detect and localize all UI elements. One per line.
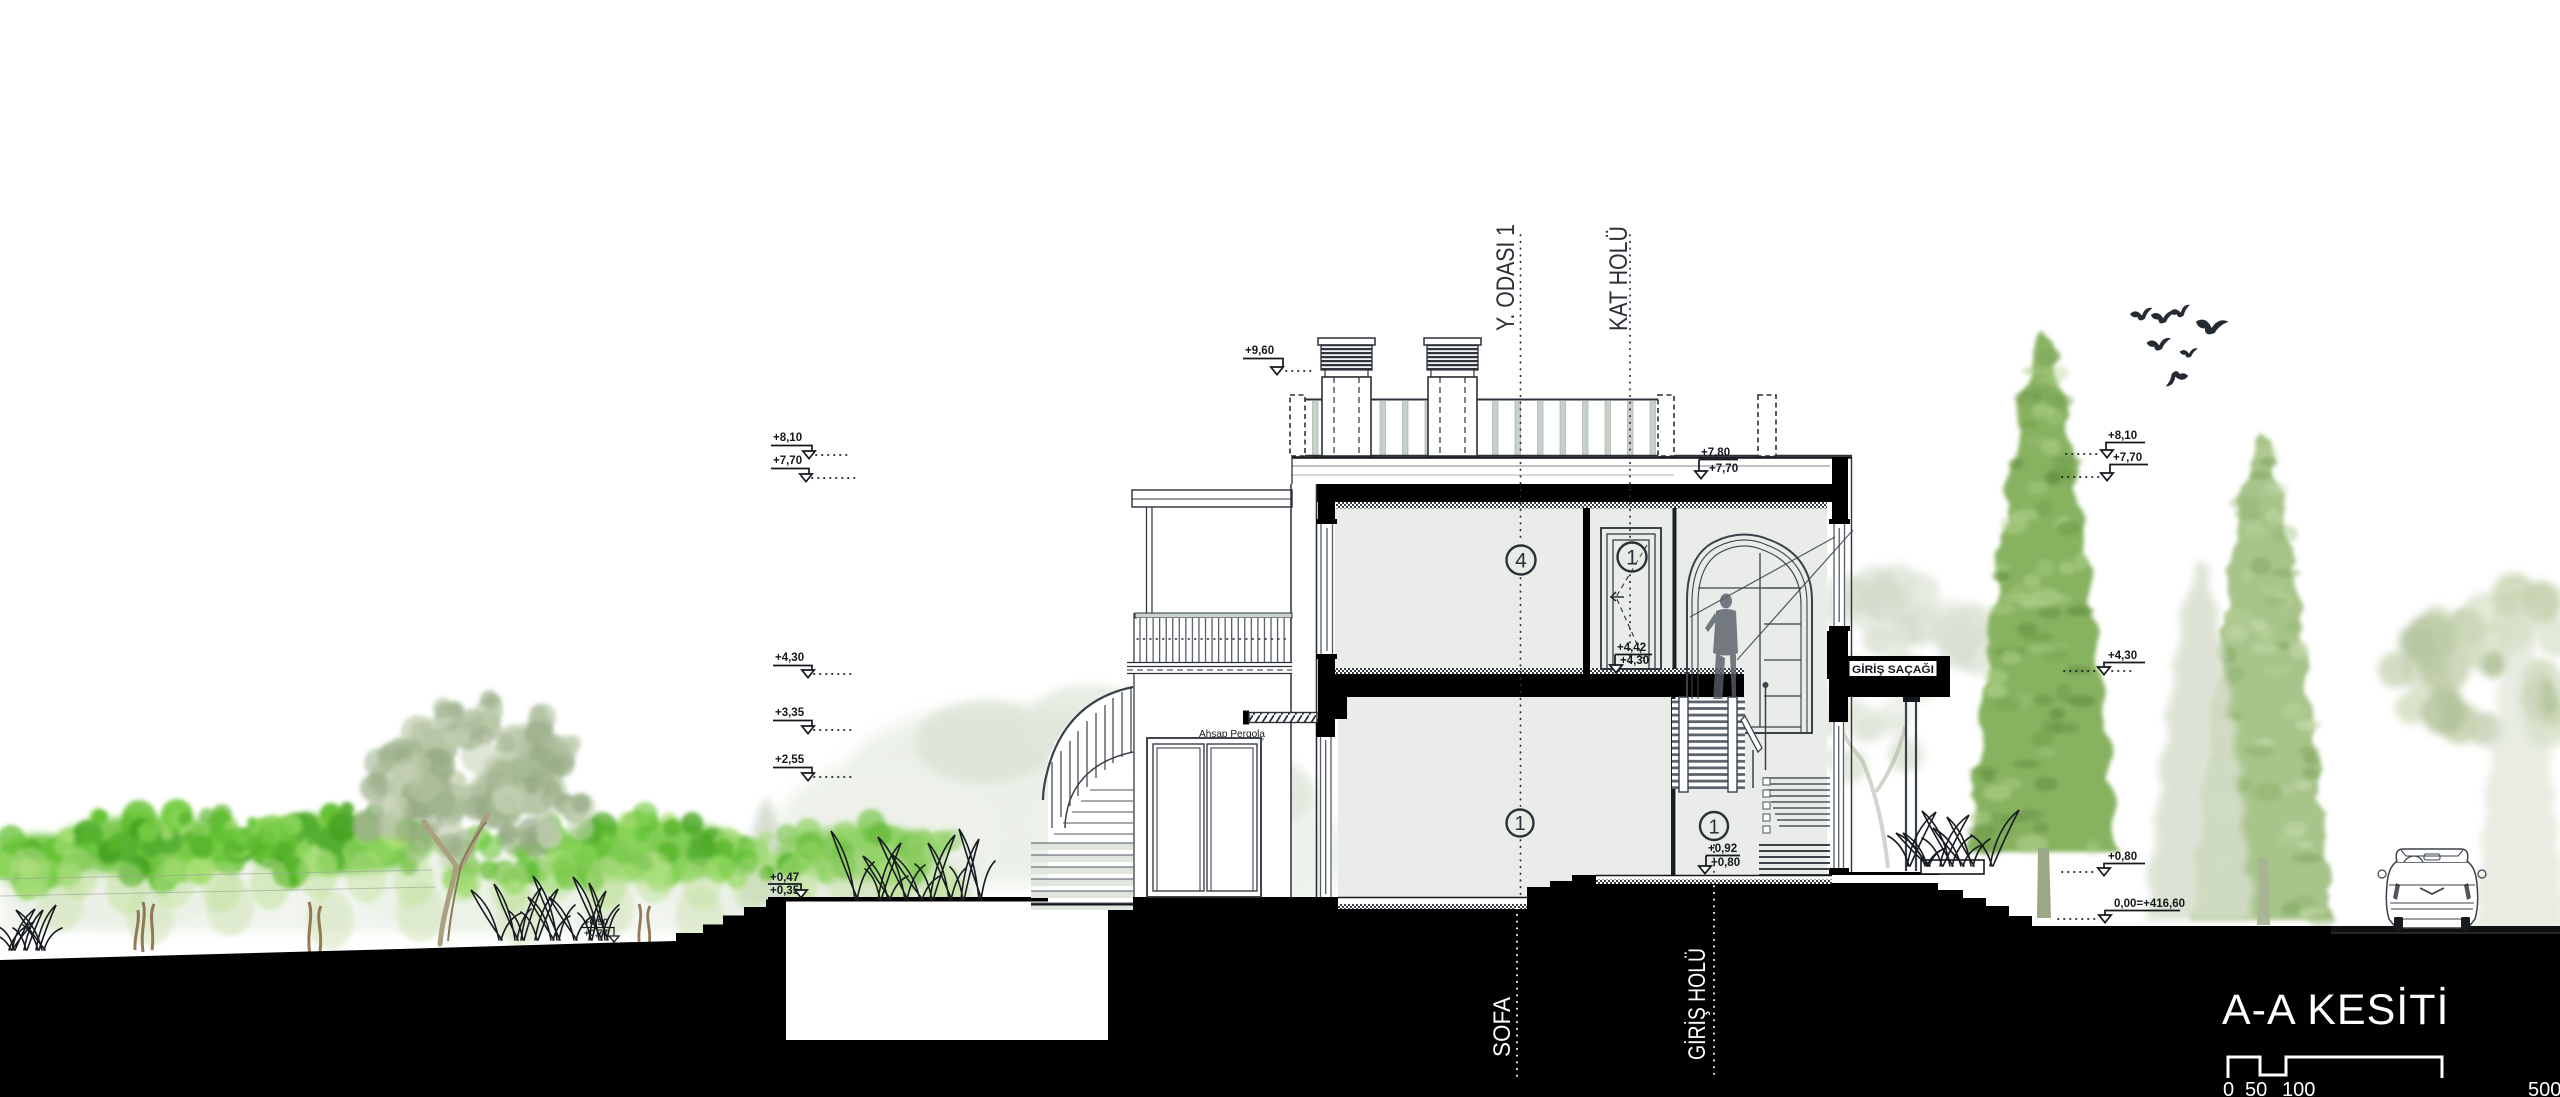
svg-text:1: 1 — [1626, 547, 1638, 570]
svg-text:+8,10: +8,10 — [773, 432, 802, 444]
svg-text:+0,90: +0,90 — [584, 917, 608, 928]
svg-text:+7,80: +7,80 — [1701, 447, 1730, 459]
svg-text:SOFA: SOFA — [1489, 997, 1516, 1057]
svg-text:+0,77: +0,77 — [584, 928, 608, 939]
svg-text:+9,60: +9,60 — [1245, 345, 1274, 357]
svg-text:+0,80: +0,80 — [2108, 851, 2137, 863]
svg-text:50: 50 — [2245, 1079, 2267, 1097]
svg-text:GİRİŞ HOLÜ: GİRİŞ HOLÜ — [1684, 948, 1711, 1060]
svg-text:A-A KESİTİ: A-A KESİTİ — [2222, 986, 2449, 1034]
svg-text:GİRİŞ SAÇAĞI: GİRİŞ SAÇAĞI — [1852, 663, 1934, 676]
svg-text:Y. ODASI 1: Y. ODASI 1 — [1492, 224, 1520, 331]
svg-text:1: 1 — [1514, 813, 1525, 835]
svg-text:+4,42: +4,42 — [1617, 642, 1646, 654]
svg-text:0,00=+416,60: 0,00=+416,60 — [2114, 898, 2185, 910]
svg-text:100: 100 — [2282, 1079, 2315, 1097]
svg-text:KAT HOLÜ: KAT HOLÜ — [1605, 226, 1633, 331]
svg-text:+7,70: +7,70 — [2113, 452, 2142, 464]
svg-text:0: 0 — [2223, 1079, 2234, 1097]
svg-text:+3,35: +3,35 — [775, 707, 805, 719]
svg-text:+4,30: +4,30 — [775, 652, 804, 664]
svg-text:+0,92: +0,92 — [1708, 843, 1737, 855]
svg-text:+4,30: +4,30 — [1620, 655, 1649, 667]
svg-text:1: 1 — [1708, 816, 1719, 838]
svg-text:4: 4 — [1515, 550, 1527, 573]
svg-text:+7,70: +7,70 — [773, 455, 802, 467]
svg-text:+7,70: +7,70 — [1709, 463, 1738, 475]
svg-text:+0,80: +0,80 — [1711, 857, 1740, 869]
svg-text:+4,30: +4,30 — [2108, 650, 2137, 662]
svg-text:+8,10: +8,10 — [2108, 430, 2137, 442]
svg-text:+0,47: +0,47 — [770, 872, 799, 884]
svg-text:500: 500 — [2528, 1079, 2560, 1097]
svg-text:+2,55: +2,55 — [775, 754, 805, 766]
